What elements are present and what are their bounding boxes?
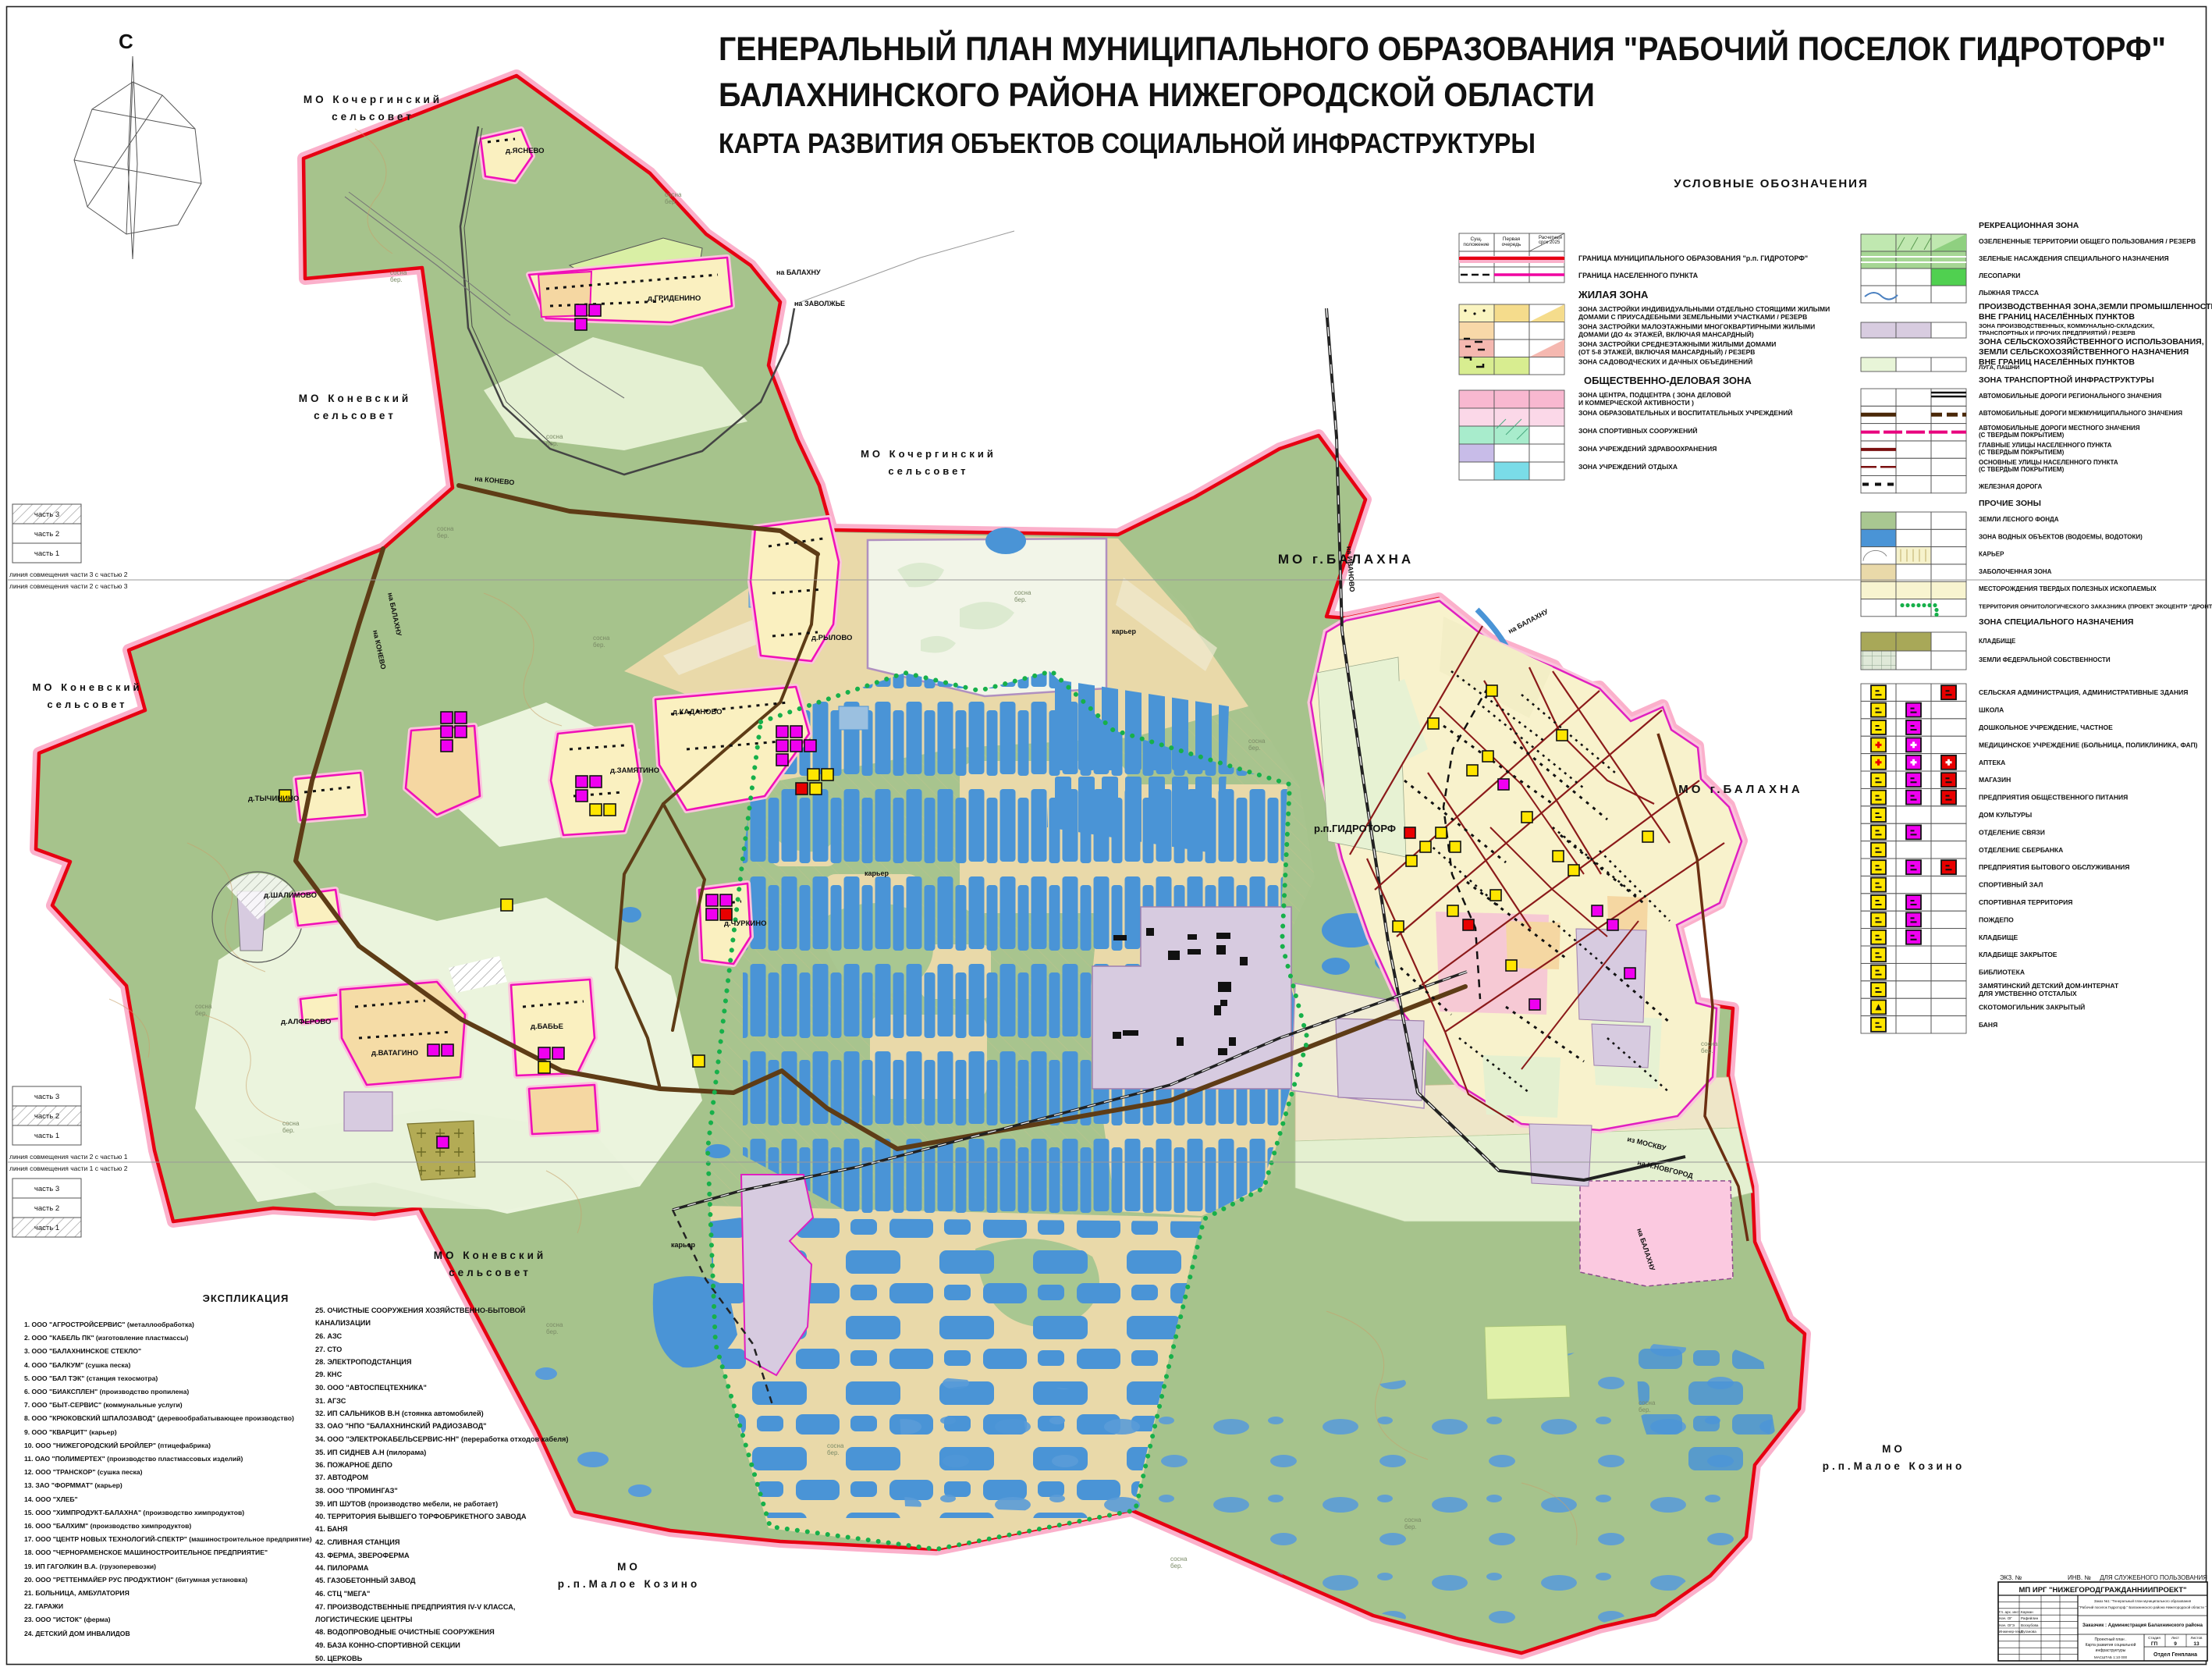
svg-text:Гл. арх. инст.: Гл. арх. инст.: [1999, 1610, 2021, 1614]
svg-text:ГЕНЕРАЛЬНЫЙ ПЛАН МУНИЦИПАЛЬНОГ: ГЕНЕРАЛЬНЫЙ ПЛАН МУНИЦИПАЛЬНОГО ОБРАЗОВА…: [719, 30, 2166, 68]
svg-text:ГП: ГП: [2151, 1641, 2158, 1647]
svg-text:36. ПОЖАРНОЕ ДЕПО: 36. ПОЖАРНОЕ ДЕПО: [315, 1461, 392, 1469]
svg-text:АВТОМОБИЛЬНЫЕ ДОРОГИ МЕЖМУНИЦИ: АВТОМОБИЛЬНЫЕ ДОРОГИ МЕЖМУНИЦИПАЛЬНОГО З…: [1979, 410, 2182, 417]
svg-text:ДОМ КУЛЬТУРЫ: ДОМ КУЛЬТУРЫ: [1979, 811, 2032, 819]
svg-text:(С ТВЕРДЫМ ПОКРЫТИЕМ): (С ТВЕРДЫМ ПОКРЫТИЕМ): [1979, 449, 2065, 456]
svg-text:линия совмещения части 3 с ча: линия совмещения части 3 с частью 2: [9, 571, 128, 578]
svg-text:МО Коневский: МО Коневский: [434, 1250, 546, 1261]
svg-text:д.ЗАМЯТИНО: д.ЗАМЯТИНО: [610, 766, 659, 775]
svg-text:39. ИП ШУТОВ (производство меб: 39. ИП ШУТОВ (производство мебели, не ра…: [315, 1500, 498, 1508]
svg-text:линия совмещения части 2 с ча: линия совмещения части 2 с частью 1: [9, 1153, 128, 1161]
svg-text:49. БАЗА КОННО-СПОРТИВНОЙ СЕКЦ: 49. БАЗА КОННО-СПОРТИВНОЙ СЕКЦИИ: [315, 1641, 460, 1649]
svg-text:5. ООО "БАЛ ТЭК" (станция техо: 5. ООО "БАЛ ТЭК" (станция техосмотра): [24, 1374, 158, 1382]
svg-text:27. СТО: 27. СТО: [315, 1346, 342, 1353]
svg-text:6. ООО "БИАКСПЛЕН" (производст: 6. ООО "БИАКСПЛЕН" (производство пропиле…: [24, 1388, 189, 1395]
svg-text:ЗОНА УЧРЕЖДЕНИЙ ОТДЫХА: ЗОНА УЧРЕЖДЕНИЙ ОТДЫХА: [1578, 462, 1678, 471]
svg-text:МП ИРГ "НИЖЕГОРОДГРАЖДАННИИПРО: МП ИРГ "НИЖЕГОРОДГРАЖДАННИИПРОЕКТ": [2018, 1586, 2186, 1595]
svg-text:ЗЕМЛИ ЛЕСНОГО ФОНДА: ЗЕМЛИ ЛЕСНОГО ФОНДА: [1979, 516, 2059, 523]
svg-text:ЛЕСОПАРКИ: ЛЕСОПАРКИ: [1979, 272, 2020, 279]
svg-text:И КОММЕРЧЕСКОЙ АКТИВНОСТИ ): И КОММЕРЧЕСКОЙ АКТИВНОСТИ ): [1578, 398, 1694, 407]
svg-text:ДОМАМИ С ПРИУСАДЕБНЫМИ ЗЕМЕЛЬН: ДОМАМИ С ПРИУСАДЕБНЫМИ ЗЕМЕЛЬНЫМИ УЧАСТК…: [1578, 313, 1807, 321]
svg-text:48. ВОДОПРОВОДНЫЕ ОЧИСТНЫЕ СОО: 48. ВОДОПРОВОДНЫЕ ОЧИСТНЫЕ СООРУЖЕНИЯ: [315, 1628, 495, 1636]
svg-text:19. ИП ГАГОЛКИН В.А. (грузопер: 19. ИП ГАГОЛКИН В.А. (грузоперевозки): [24, 1563, 156, 1570]
svg-text:на ЗАВОЛЖЬЕ: на ЗАВОЛЖЬЕ: [794, 300, 845, 308]
svg-text:на БАЛАХНУ: на БАЛАХНУ: [776, 268, 821, 276]
svg-text:3. ООО "БАЛАХНИНСКОЕ СТЕКЛО": 3. ООО "БАЛАХНИНСКОЕ СТЕКЛО": [24, 1347, 141, 1355]
svg-text:Заказчик : Администрация Балах: Заказчик : Администрация Балахнинского р…: [2082, 1623, 2203, 1628]
svg-text:ЗОНА ПРОИЗВОДСТВЕННЫХ, КОММУНА: ЗОНА ПРОИЗВОДСТВЕННЫХ, КОММУНАЛЬНО-СКЛАД…: [1979, 322, 2154, 329]
svg-text:Стадия: Стадия: [2148, 1636, 2161, 1640]
svg-text:12. ООО "ТРАНСКОР" (сушка песк: 12. ООО "ТРАНСКОР" (сушка песка): [24, 1468, 143, 1476]
svg-text:47. ПРОИЗВОДСТВЕННЫЕ ПРЕДПРИЯТ: 47. ПРОИЗВОДСТВЕННЫЕ ПРЕДПРИЯТИЯ IV-V КЛ…: [315, 1603, 515, 1611]
svg-text:14. ООО "ХЛЕБ": 14. ООО "ХЛЕБ": [24, 1495, 78, 1503]
svg-text:45. ГАЗОБЕТОННЫЙ ЗАВОД: 45. ГАЗОБЕТОННЫЙ ЗАВОД: [315, 1576, 416, 1584]
svg-text:35. ИП СИДНЕВ А.Н (пилорама): 35. ИП СИДНЕВ А.Н (пилорама): [315, 1449, 426, 1456]
svg-text:ГРАНИЦА НАСЕЛЕННОГО ПУНКТА: ГРАНИЦА НАСЕЛЕННОГО ПУНКТА: [1578, 272, 1699, 279]
svg-text:(ОТ 5-8 ЭТАЖЕЙ, ВКЛЮЧАЯ МАНСАР: (ОТ 5-8 ЭТАЖЕЙ, ВКЛЮЧАЯ МАНСАРДНЫЙ) / РЕ…: [1578, 347, 1755, 356]
svg-text:10. ООО "НИЖЕГОРОДСКИЙ БРОЙЛЕР: 10. ООО "НИЖЕГОРОДСКИЙ БРОЙЛЕР" (птицефа…: [24, 1441, 211, 1449]
svg-text:25. ОЧИСТНЫЕ СООРУЖЕНИЯ ХОЗЯЙС: 25. ОЧИСТНЫЕ СООРУЖЕНИЯ ХОЗЯЙСТВЕННО-БЫТ…: [315, 1306, 525, 1314]
svg-text:р.п.Малое Козино: р.п.Малое Козино: [1823, 1460, 1965, 1472]
svg-text:ДОШКОЛЬНОЕ УЧРЕЖДЕНИЕ, ЧАСТНОЕ: ДОШКОЛЬНОЕ УЧРЕЖДЕНИЕ, ЧАСТНОЕ: [1979, 724, 2113, 731]
svg-text:сельсовет: сельсовет: [332, 111, 414, 123]
svg-text:ЖИЛАЯ ЗОНА: ЖИЛАЯ ЗОНА: [1578, 289, 1649, 300]
svg-text:ГЛАВНЫЕ УЛИЦЫ НАСЕЛЕННОГО ПУНК: ГЛАВНЫЕ УЛИЦЫ НАСЕЛЕННОГО ПУНКТА: [1979, 442, 2112, 449]
svg-text:ПОЖДЕПО: ПОЖДЕПО: [1979, 915, 2014, 923]
svg-text:д.ЯСНЕВО: д.ЯСНЕВО: [506, 147, 545, 155]
svg-text:д.ГРИДЕНИНО: д.ГРИДЕНИНО: [648, 294, 701, 303]
svg-text:7. ООО "БЫТ-СЕРВИС" (коммуналь: 7. ООО "БЫТ-СЕРВИС" (коммунальные услуги…: [24, 1401, 183, 1409]
svg-text:ЗОНА СЕЛЬСКОХОЗЯЙСТВЕННОГО ИСП: ЗОНА СЕЛЬСКОХОЗЯЙСТВЕННОГО ИСПОЛЬЗОВАНИЯ…: [1979, 336, 2204, 347]
svg-text:МО Кочергинский: МО Кочергинский: [304, 94, 442, 105]
svg-text:ЗОНА ЗАСТРОЙКИ СРЕДНЕЭТАЖНЫМИ: ЗОНА ЗАСТРОЙКИ СРЕДНЕЭТАЖНЫМИ ЖИЛЫМИ ДОМ…: [1578, 340, 1776, 348]
svg-text:МАСШТАБ 1:10 000: МАСШТАБ 1:10 000: [2094, 1655, 2128, 1659]
svg-text:инфраструктуры: инфраструктуры: [2096, 1648, 2126, 1653]
svg-text:карьер: карьер: [1112, 628, 1137, 635]
svg-text:р.п.Малое Козино: р.п.Малое Козино: [558, 1578, 700, 1590]
svg-text:ЗОНА ОБРАЗОВАТЕЛЬНЫХ И ВОСПИТ: ЗОНА ОБРАЗОВАТЕЛЬНЫХ И ВОСПИТАТЕЛЬНЫХ УЧ…: [1578, 408, 1792, 417]
svg-text:40. ТЕРРИТОРИЯ БЫВШЕГО ТОРФОБР: 40. ТЕРРИТОРИЯ БЫВШЕГО ТОРФОБРИКЕТНОГО З…: [315, 1513, 527, 1520]
svg-text:15. ООО "ХИМПРОДУКТ-БАЛАХНА" (: 15. ООО "ХИМПРОДУКТ-БАЛАХНА" (производст…: [24, 1509, 244, 1516]
svg-text:8. ООО "КРЮКОВСКИЙ ШПАЛОЗАВОД": 8. ООО "КРЮКОВСКИЙ ШПАЛОЗАВОД" (деревооб…: [24, 1413, 294, 1422]
svg-text:24. ДЕТСКИЙ ДОМ ИНВАЛИДОВ: 24. ДЕТСКИЙ ДОМ ИНВАЛИДОВ: [24, 1629, 130, 1637]
svg-text:МЕДИЦИНСКОЕ УЧРЕЖДЕНИЕ (БОЛЬНИ: МЕДИЦИНСКОЕ УЧРЕЖДЕНИЕ (БОЛЬНИЦА, ПОЛИКЛ…: [1979, 741, 2198, 748]
svg-text:ОТДЕЛЕНИЕ СВЯЗИ: ОТДЕЛЕНИЕ СВЯЗИ: [1979, 828, 2045, 836]
svg-text:ГРАНИЦА МУНИЦИПАЛЬНОГО ОБРАЗОВ: ГРАНИЦА МУНИЦИПАЛЬНОГО ОБРАЗОВАНИЯ "р.п.…: [1578, 254, 1808, 262]
svg-text:МО Коневский: МО Коневский: [33, 681, 143, 693]
svg-text:КЛАДБИЩЕ: КЛАДБИЩЕ: [1979, 933, 2018, 941]
svg-text:22. ГАРАЖИ: 22. ГАРАЖИ: [24, 1602, 63, 1610]
svg-text:ЭКСПЛИКАЦИЯ: ЭКСПЛИКАЦИЯ: [203, 1292, 289, 1304]
svg-text:ЗОНА СПОРТИВНЫХ СООРУЖЕНИЙ: ЗОНА СПОРТИВНЫХ СООРУЖЕНИЙ: [1578, 426, 1698, 435]
svg-text:ЛУГА, ПАШНИ: ЛУГА, ПАШНИ: [1979, 364, 2019, 371]
svg-text:"Рабочий поселок Гидроторф." Б: "Рабочий поселок Гидроторф." Балахнинско…: [2079, 1605, 2207, 1609]
svg-text:карьер: карьер: [865, 869, 889, 877]
svg-text:ПРЕДПРИЯТИЯ БЫТОВОГО ОБСЛУЖИВА: ПРЕДПРИЯТИЯ БЫТОВОГО ОБСЛУЖИВАНИЯ: [1979, 863, 2129, 871]
svg-text:9: 9: [2174, 1641, 2177, 1647]
svg-text:20. ООО "РЕТТЕНМАЙЕР РУС ПРОДУ: 20. ООО "РЕТТЕНМАЙЕР РУС ПРОДУКТИОН" (би…: [24, 1575, 247, 1584]
svg-text:Рафейлин: Рафейлин: [2021, 1616, 2039, 1620]
svg-text:МО: МО: [617, 1561, 641, 1573]
svg-text:26. АЗС: 26. АЗС: [315, 1332, 342, 1340]
svg-text:(С ТВЕРДЫМ ПОКРЫТИЕМ): (С ТВЕРДЫМ ПОКРЫТИЕМ): [1979, 466, 2065, 473]
svg-text:ЖЕЛЕЗНАЯ ДОРОГА: ЖЕЛЕЗНАЯ ДОРОГА: [1978, 483, 2042, 490]
svg-text:37. АВТОДРОМ: 37. АВТОДРОМ: [315, 1474, 368, 1481]
svg-text:сельсовет: сельсовет: [888, 465, 968, 477]
svg-text:часть 2: часть 2: [34, 530, 59, 539]
svg-text:р.п.ГИДРОТОРФ: р.п.ГИДРОТОРФ: [1314, 823, 1396, 834]
svg-text:МЕСТОРОЖДЕНИЯ ТВЕРДЫХ ПОЛЕЗНЫХ: МЕСТОРОЖДЕНИЯ ТВЕРДЫХ ПОЛЕЗНЫХ ИСКОПАЕМЫ…: [1979, 585, 2157, 592]
svg-text:ОБЩЕСТВЕННО-ДЕЛОВАЯ ЗОНА: ОБЩЕСТВЕННО-ДЕЛОВАЯ ЗОНА: [1584, 375, 1752, 386]
svg-text:АВТОМОБИЛЬНЫЕ ДОРОГИ РЕГИОНАЛЬ: АВТОМОБИЛЬНЫЕ ДОРОГИ РЕГИОНАЛЬНОГО ЗНАЧЕ…: [1979, 393, 2161, 400]
svg-text:16. ООО "БАЛХИМ" (производство: 16. ООО "БАЛХИМ" (производство химпродук…: [24, 1522, 191, 1530]
svg-text:ОЗЕЛЕНЕННЫЕ ТЕРРИТОРИИ ОБЩЕГО: ОЗЕЛЕНЕННЫЕ ТЕРРИТОРИИ ОБЩЕГО ПОЛЬЗОВАНИ…: [1979, 237, 2196, 245]
svg-text:часть 1: часть 1: [34, 549, 59, 558]
svg-text:ЗОНА ЗАСТРОЙКИ ИНДИВИДУАЛЬНЫМИ: ЗОНА ЗАСТРОЙКИ ИНДИВИДУАЛЬНЫМИ ОТДЕЛЬНО …: [1578, 304, 1830, 313]
svg-text:13: 13: [2193, 1641, 2200, 1647]
svg-text:д.КАДАНОВО: д.КАДАНОВО: [673, 708, 723, 716]
svg-text:ЗОНА СПЕЦИАЛЬНОГО НАЗНАЧЕНИЯ: ЗОНА СПЕЦИАЛЬНОГО НАЗНАЧЕНИЯ: [1979, 617, 2133, 627]
svg-text:д.РЫЛОВО: д.РЫЛОВО: [811, 634, 852, 642]
svg-text:11. ОАО "ПОЛИМЕРТЕХ" (производ: 11. ОАО "ПОЛИМЕРТЕХ" (производство пласт…: [24, 1455, 243, 1463]
svg-text:ВНЕ ГРАНИЦ НАСЕЛЁННЫХ ПУНКТОВ: ВНЕ ГРАНИЦ НАСЕЛЁННЫХ ПУНКТОВ: [1979, 311, 2135, 322]
svg-text:МО Коневский: МО Коневский: [299, 393, 411, 404]
svg-text:44. ПИЛОРАМА: 44. ПИЛОРАМА: [315, 1564, 369, 1572]
svg-text:часть 1: часть 1: [34, 1224, 59, 1232]
svg-text:д.АЛФЕРОВО: д.АЛФЕРОВО: [281, 1018, 331, 1026]
svg-text:ЗАМЯТИНСКИЙ ДЕТСКИЙ ДОМ-ИНТЕРН: ЗАМЯТИНСКИЙ ДЕТСКИЙ ДОМ-ИНТЕРНАТ: [1979, 981, 2119, 990]
svg-text:д.ЧУРКИНО: д.ЧУРКИНО: [724, 919, 766, 928]
svg-text:ТРАНСПОРТНЫХ И ПРОЧИХ ПРЕДПРИЯ: ТРАНСПОРТНЫХ И ПРОЧИХ ПРЕДПРИЯТИЙ / РЕЗЕ…: [1979, 329, 2136, 336]
svg-text:43. ФЕРМА, ЗВЕРОФЕРМА: 43. ФЕРМА, ЗВЕРОФЕРМА: [315, 1552, 410, 1559]
svg-text:29. КНС: 29. КНС: [315, 1371, 343, 1378]
svg-text:сельсовет: сельсовет: [314, 410, 396, 421]
svg-text:д.ТЫЧИНИНО: д.ТЫЧИНИНО: [248, 795, 299, 803]
svg-text:часть 3: часть 3: [34, 1093, 59, 1101]
svg-text:МО г.БАЛАХНА: МО г.БАЛАХНА: [1678, 783, 1803, 796]
svg-text:Кауман: Кауман: [2021, 1610, 2033, 1614]
svg-text:33. ОАО "НПО "БАЛАХНИНСКИЙ РАД: 33. ОАО "НПО "БАЛАХНИНСКИЙ РАДИОЗАВОД": [315, 1421, 487, 1430]
svg-text:Заказ №1: "Генеральный план му: Заказ №1: "Генеральный план муниципально…: [2094, 1599, 2192, 1603]
svg-text:КАНАЛИЗАЦИИ: КАНАЛИЗАЦИИ: [315, 1319, 371, 1327]
svg-text:РЕКРЕАЦИОННАЯ ЗОНА: РЕКРЕАЦИОННАЯ ЗОНА: [1979, 221, 2079, 230]
svg-text:БАНЯ: БАНЯ: [1979, 1021, 1997, 1029]
svg-text:КАРТА РАЗВИТИЯ ОБЪЕКТОВ СОЦИАЛ: КАРТА РАЗВИТИЯ ОБЪЕКТОВ СОЦИАЛЬНОЙ ИНФРА…: [719, 126, 1536, 159]
svg-text:2. ООО "КАБЕЛЬ ПК" (изготовлен: 2. ООО "КАБЕЛЬ ПК" (изготовление пластма…: [24, 1334, 188, 1342]
svg-text:ЗЕЛЕНЫЕ НАСАЖДЕНИЯ СПЕЦИАЛЬНОГ: ЗЕЛЕНЫЕ НАСАЖДЕНИЯ СПЕЦИАЛЬНОГО НАЗНАЧЕН…: [1979, 254, 2169, 262]
svg-text:КАРЬЕР: КАРЬЕР: [1979, 551, 2004, 558]
svg-text:ЗАБОЛОЧЕННАЯ ЗОНА: ЗАБОЛОЧЕННАЯ ЗОНА: [1979, 568, 2052, 575]
svg-text:ЭКЗ. №: ЭКЗ. №: [2000, 1574, 2022, 1581]
svg-text:карьер: карьер: [671, 1241, 696, 1249]
svg-text:ДЛЯ УМСТВЕННО ОТСТАЛЫХ: ДЛЯ УМСТВЕННО ОТСТАЛЫХ: [1979, 990, 2077, 997]
svg-text:часть 2: часть 2: [34, 1112, 59, 1121]
svg-text:МО Кочергинский: МО Кочергинский: [861, 448, 996, 460]
svg-text:Нач. ОГ: Нач. ОГ: [1999, 1616, 2012, 1620]
svg-text:ЗЕМЛИ СЕЛЬСКОХОЗЯЙСТВЕННОГО НА: ЗЕМЛИ СЕЛЬСКОХОЗЯЙСТВЕННОГО НАЗНАЧЕНИЯ: [1979, 347, 2189, 357]
svg-text:СЕЛЬСКАЯ АДМИНИСТРАЦИЯ, АДМИНИ: СЕЛЬСКАЯ АДМИНИСТРАЦИЯ, АДМИНИСТРАТИВНЫЕ…: [1979, 688, 2188, 696]
svg-text:часть 3: часть 3: [34, 1185, 59, 1193]
svg-text:ЗОНА ВОДНЫХ ОБЪЕКТОВ (ВОДОЕМ: ЗОНА ВОДНЫХ ОБЪЕКТОВ (ВОДОЕМЫ, ВОДОТОКИ): [1979, 533, 2143, 540]
svg-text:ИНВ. №: ИНВ. №: [2068, 1574, 2091, 1581]
svg-text:50. ЦЕРКОВЬ: 50. ЦЕРКОВЬ: [315, 1655, 363, 1662]
svg-text:17. ООО "ЦЕНТР НОВЫХ ТЕХНОЛОГИ: 17. ООО "ЦЕНТР НОВЫХ ТЕХНОЛОГИЙ-СПЕКТР" …: [24, 1534, 312, 1543]
svg-text:СКОТОМОГИЛЬНИК ЗАКРЫТЫЙ: СКОТОМОГИЛЬНИК ЗАКРЫТЫЙ: [1979, 1002, 2085, 1011]
svg-text:УСЛОВНЫЕ ОБОЗНАЧЕНИЯ: УСЛОВНЫЕ ОБОЗНАЧЕНИЯ: [1674, 177, 1868, 190]
svg-text:21. БОЛЬНИЦА, АМБУЛАТОРИЯ: 21. БОЛЬНИЦА, АМБУЛАТОРИЯ: [24, 1589, 130, 1597]
svg-text:БИБЛИОТЕКА: БИБЛИОТЕКА: [1979, 969, 2025, 976]
svg-text:часть 3: часть 3: [34, 510, 59, 519]
svg-text:Листов: Листов: [2191, 1636, 2203, 1640]
svg-text:ТЕРРИТОРИЯ ОРНИТОЛОГИЧЕСКОГО З: ТЕРРИТОРИЯ ОРНИТОЛОГИЧЕСКОГО ЗАКАЗНИКА (…: [1979, 603, 2212, 610]
svg-text:БАЛАХНИНСКОГО РАЙОНА НИЖЕГОРОД: БАЛАХНИНСКОГО РАЙОНА НИЖЕГОРОДСКОЙ ОБЛАС…: [719, 76, 1595, 114]
svg-text:ОТДЕЛЕНИЕ СБЕРБАНКА: ОТДЕЛЕНИЕ СБЕРБАНКА: [1979, 846, 2063, 854]
svg-text:КЛАДБИЩЕ ЗАКРЫТОЕ: КЛАДБИЩЕ ЗАКРЫТОЕ: [1979, 951, 2058, 958]
svg-text:(С ТВЕРДЫМ ПОКРЫТИЕМ): (С ТВЕРДЫМ ПОКРЫТИЕМ): [1979, 432, 2065, 439]
svg-text:МАГАЗИН: МАГАЗИН: [1979, 776, 2011, 784]
svg-text:ОСНОВНЫЕ УЛИЦЫ НАСЕЛЕННОГО ПУН: ОСНОВНЫЕ УЛИЦЫ НАСЕЛЕННОГО ПУНКТА: [1979, 459, 2118, 466]
svg-text:Инженер-геод.: Инженер-геод.: [1999, 1630, 2023, 1634]
svg-text:ЗОНА ТРАНСПОРТНОЙ ИНФРАСТРУКТУ: ЗОНА ТРАНСПОРТНОЙ ИНФРАСТРУКТУРЫ: [1979, 375, 2154, 385]
svg-text:ЗОНА ЦЕНТРА, ПОДЦЕНТРА ( ЗОНА: ЗОНА ЦЕНТРА, ПОДЦЕНТРА ( ЗОНА ДЕЛОВОЙ: [1578, 390, 1731, 399]
svg-text:Отдел Генплана: Отдел Генплана: [2153, 1652, 2197, 1658]
svg-text:ЗОНА УЧРЕЖДЕНИЙ ЗДРАВООХРАНЕНИ: ЗОНА УЧРЕЖДЕНИЙ ЗДРАВООХРАНЕНИЯ: [1578, 444, 1717, 453]
svg-text:1. ООО "АГРОСТРОЙСЕРВИС" (мет: 1. ООО "АГРОСТРОЙСЕРВИС" (металлообработ…: [24, 1320, 194, 1328]
svg-text:СПОРТИВНАЯ ТЕРРИТОРИЯ: СПОРТИВНАЯ ТЕРРИТОРИЯ: [1979, 898, 2072, 906]
svg-text:ПРОЧИЕ ЗОНЫ: ПРОЧИЕ ЗОНЫ: [1979, 499, 2041, 508]
svg-text:КЛАДБИЩЕ: КЛАДБИЩЕ: [1979, 638, 2016, 645]
svg-text:42. СЛИВНАЯ СТАНЦИЯ: 42. СЛИВНАЯ СТАНЦИЯ: [315, 1538, 399, 1546]
svg-text:д.ВАТАГИНО: д.ВАТАГИНО: [371, 1049, 418, 1058]
svg-text:18. ООО "ЧЕРНОРАМЕНСКОЕ МАШИНО: 18. ООО "ЧЕРНОРАМЕНСКОЕ МАШИНОСТРОИТЕЛЬН…: [24, 1548, 268, 1556]
svg-text:ПРЕДПРИЯТИЯ ОБЩЕСТВЕННОГО ПИТА: ПРЕДПРИЯТИЯ ОБЩЕСТВЕННОГО ПИТАНИЯ: [1979, 794, 2128, 802]
svg-text:АПТЕКА: АПТЕКА: [1979, 759, 2005, 766]
svg-text:д.ШАЛИМОВО: д.ШАЛИМОВО: [264, 891, 317, 900]
svg-text:Пуганова: Пуганова: [2021, 1630, 2036, 1634]
svg-text:линия совмещения части 1 с ча: линия совмещения части 1 с частью 2: [9, 1164, 128, 1172]
svg-text:30. ООО "АВТОСПЕЦТЕХНИКА": 30. ООО "АВТОСПЕЦТЕХНИКА": [315, 1384, 427, 1392]
svg-text:Воскубова: Воскубова: [2021, 1623, 2039, 1627]
svg-text:ЗОНА ЗАСТРОЙКИ МАЛОЭТАЖНЫМИ М: ЗОНА ЗАСТРОЙКИ МАЛОЭТАЖНЫМИ МНОГОКВАРТИР…: [1578, 322, 1815, 331]
svg-text:СПОРТИВНЫЙ ЗАЛ: СПОРТИВНЫЙ ЗАЛ: [1979, 880, 2043, 889]
svg-text:сельсовет: сельсовет: [47, 699, 127, 710]
svg-text:28. ЭЛЕКТРОПОДСТАНЦИЯ: 28. ЭЛЕКТРОПОДСТАНЦИЯ: [315, 1358, 412, 1366]
svg-text:Перваяочередь: Перваяочередь: [1502, 236, 1521, 247]
svg-text:23. ООО "ИСТОК" (ферма): 23. ООО "ИСТОК" (ферма): [24, 1616, 111, 1623]
svg-text:Нач. ОГЭ: Нач. ОГЭ: [1999, 1623, 2015, 1627]
svg-text:9. ООО "КВАРЦИТ" (карьер): 9. ООО "КВАРЦИТ" (карьер): [24, 1428, 117, 1436]
svg-text:ДОМАМИ (ДО 4х ЭТАЖЕЙ, ВКЛЮЧАЯ: ДОМАМИ (ДО 4х ЭТАЖЕЙ, ВКЛЮЧАЯ МАНСАРДНЫЙ…: [1578, 330, 1754, 339]
svg-text:Лист: Лист: [2171, 1636, 2180, 1640]
svg-text:41. БАНЯ: 41. БАНЯ: [315, 1525, 347, 1533]
svg-text:часть 1: часть 1: [34, 1132, 59, 1140]
svg-text:МО: МО: [1882, 1443, 1905, 1455]
svg-text:ЗЕМЛИ ФЕДЕРАЛЬНОЙ СОБСТВЕННОС: ЗЕМЛИ ФЕДЕРАЛЬНОЙ СОБСТВЕННОСТИ: [1979, 656, 2111, 663]
svg-text:С: С: [119, 30, 133, 53]
svg-text:д.БАБЬЕ: д.БАБЬЕ: [531, 1022, 563, 1031]
svg-text:Карта развития социальной: Карта развития социальной: [2086, 1642, 2136, 1648]
svg-text:сельсовет: сельсовет: [449, 1267, 531, 1278]
svg-text:34. ООО "ЭЛЕКТРОКАБЕЛЬСЕРВИС-Н: 34. ООО "ЭЛЕКТРОКАБЕЛЬСЕРВИС-НН" (перера…: [315, 1435, 568, 1443]
svg-text:ЗОНА САДОВОДЧЕСКИХ И ДАЧНЫХ ОБ: ЗОНА САДОВОДЧЕСКИХ И ДАЧНЫХ ОБЪЕДИНЕНИЙ: [1578, 357, 1752, 366]
svg-text:4. ООО "БАЛКУМ" (сушка песка): 4. ООО "БАЛКУМ" (сушка песка): [24, 1361, 130, 1369]
svg-text:ДЛЯ СЛУЖЕБНОГО ПОЛЬЗОВАНИЯ: ДЛЯ СЛУЖЕБНОГО ПОЛЬЗОВАНИЯ: [2100, 1574, 2207, 1581]
svg-text:46. СТЦ "МЕГА": 46. СТЦ "МЕГА": [315, 1590, 370, 1598]
svg-text:Проектный план .: Проектный план .: [2095, 1637, 2127, 1642]
svg-text:АВТОМОБИЛЬНЫЕ ДОРОГИ МЕСТНОГО: АВТОМОБИЛЬНЫЕ ДОРОГИ МЕСТНОГО ЗНАЧЕНИЯ: [1979, 425, 2140, 432]
svg-text:38. ООО "ПРОМИНГАЗ": 38. ООО "ПРОМИНГАЗ": [315, 1487, 398, 1495]
svg-text:ЛОГИСТИЧЕСКИЕ ЦЕНТРЫ: ЛОГИСТИЧЕСКИЕ ЦЕНТРЫ: [315, 1616, 412, 1623]
svg-text:часть 2: часть 2: [34, 1204, 59, 1213]
svg-text:32. ИП САЛЬНИКОВ В.Н (стоянка: 32. ИП САЛЬНИКОВ В.Н (стоянка автомобиле…: [315, 1410, 484, 1417]
svg-text:13. ЗАО "ФОРММАТ" (карьер): 13. ЗАО "ФОРММАТ" (карьер): [24, 1481, 122, 1489]
svg-text:ЛЫЖНАЯ ТРАССА: ЛЫЖНАЯ ТРАССА: [1979, 289, 2039, 297]
svg-text:31. АГЗС: 31. АГЗС: [315, 1397, 346, 1405]
svg-text:линия совмещения части 2 с ча: линия совмещения части 2 с частью 3: [9, 582, 128, 590]
svg-text:ПРОИЗВОДСТВЕННАЯ ЗОНА,ЗЕМЛИ ПР: ПРОИЗВОДСТВЕННАЯ ЗОНА,ЗЕМЛИ ПРОМЫШЛЕННОС…: [1979, 302, 2212, 311]
svg-text:ШКОЛА: ШКОЛА: [1979, 706, 2004, 714]
